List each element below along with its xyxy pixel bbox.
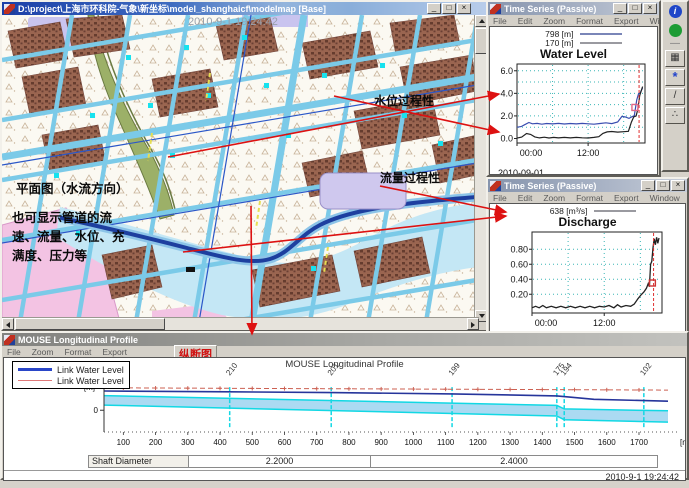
minimize-button[interactable]: _ [427, 3, 441, 14]
menu-window[interactable]: Window [650, 193, 680, 203]
legend-line-sample [594, 210, 636, 212]
svg-text:1600: 1600 [598, 438, 616, 447]
map-note-line: 也可显示管道的流 [12, 209, 125, 228]
profile-titlebar: MOUSE Longitudinal Profile [2, 333, 687, 346]
menu-bar: 纵断图 FileZoomFormatExport [2, 346, 687, 357]
map-horizontal-scrollbar[interactable] [2, 317, 479, 330]
map-canvas[interactable]: 2010-9-1 19:24:42 平面图（水流方向） 也可显示管道的流速、流量… [2, 15, 477, 322]
splash-tool-icon[interactable]: * [665, 69, 685, 86]
menu-format[interactable]: Format [576, 16, 603, 26]
svg-text:0.20: 0.20 [510, 289, 528, 299]
menu-export[interactable]: Export [102, 347, 127, 357]
app-icon [4, 4, 15, 14]
chart-date: 2010-09-01 [490, 168, 657, 175]
svg-text:300: 300 [181, 438, 195, 447]
legend-line-sample [580, 33, 622, 35]
svg-text:12:00: 12:00 [593, 318, 616, 328]
profile-legend: Link Water LevelLink Water Level [12, 361, 130, 389]
map-note-line: 速、流量、水位、充 [12, 228, 125, 247]
window-title: Time Series (Passive) [504, 4, 610, 14]
legend-entry: 798 [m] [490, 29, 657, 38]
map-label-discharge-process: 流量过程性 [380, 169, 440, 186]
svg-text:[m]: [m] [680, 438, 686, 447]
menu-bar: FileEditZoomFormatExportWindow [488, 192, 687, 203]
svg-text:200: 200 [149, 438, 163, 447]
svg-text:201: 201 [326, 361, 342, 377]
map-note-line: 满度、压力等 [12, 247, 125, 266]
map-note: 也可显示管道的流速、流量、水位、充满度、压力等 [12, 209, 125, 266]
svg-text:500: 500 [246, 438, 260, 447]
menu-zoom[interactable]: Zoom [32, 347, 54, 357]
minimize-button[interactable]: _ [641, 180, 655, 191]
svg-text:1200: 1200 [469, 438, 487, 447]
map-titlebar: D:\project\上海市环科院-气象\新坐标\model_shanghaic… [2, 2, 487, 15]
menu-edit[interactable]: Edit [518, 193, 533, 203]
chart-legend: 638 [m³/s] [490, 204, 685, 215]
close-button[interactable]: × [643, 3, 657, 14]
close-button[interactable]: × [457, 3, 471, 14]
svg-text:100: 100 [117, 438, 131, 447]
map-label-plan-view: 平面图（水流方向） [16, 178, 129, 197]
right-toolbar: i—▦*/∴ [661, 0, 689, 172]
scroll-right-button[interactable] [467, 318, 479, 330]
discharge-window: Time Series (Passive) _ □ × FileEditZoom… [486, 177, 689, 335]
menu-zoom[interactable]: Zoom [543, 193, 565, 203]
chart-title: Discharge [490, 215, 685, 229]
svg-text:700: 700 [310, 438, 324, 447]
menu-file[interactable]: File [7, 347, 21, 357]
water-level-titlebar: Time Series (Passive) _ □ × [488, 2, 659, 15]
window-icon [490, 4, 501, 14]
window-title: Time Series (Passive) [504, 181, 638, 191]
svg-text:800: 800 [342, 438, 356, 447]
map-label-water-level-process: 水位过程性 [374, 92, 434, 109]
water-level-window: Time Series (Passive) _ □ × FileEditZoom… [486, 0, 661, 177]
chart-legend: 798 [m]170 [m] [490, 27, 657, 47]
legend-entry: 638 [m³/s] [490, 206, 685, 215]
svg-text:199: 199 [447, 361, 463, 377]
svg-text:210: 210 [224, 361, 240, 377]
maximize-button[interactable]: □ [628, 3, 642, 14]
legend-line-sample [18, 380, 52, 381]
svg-text:1100: 1100 [437, 438, 455, 447]
scroll-left-button[interactable] [2, 318, 14, 330]
shaft-diameter-row: Shaft Diameter 2.2000 2.4000 [88, 455, 658, 468]
edit-profile-icon[interactable]: / [665, 88, 685, 105]
svg-text:0.60: 0.60 [510, 259, 528, 269]
svg-text:0: 0 [94, 406, 99, 415]
map-window: D:\project\上海市环科院-气象\新坐标\model_shanghaic… [0, 0, 489, 332]
maximize-button[interactable]: □ [442, 3, 456, 14]
svg-text:0.80: 0.80 [510, 244, 528, 254]
profile-window: MOUSE Longitudinal Profile 纵断图 FileZoomF… [0, 331, 689, 480]
menu-bar: FileEditZoomFormatExportWindow [488, 15, 659, 26]
svg-text:1500: 1500 [566, 438, 584, 447]
svg-text:900: 900 [374, 438, 388, 447]
window-icon [4, 335, 15, 345]
close-button[interactable]: × [671, 180, 685, 191]
svg-text:600: 600 [278, 438, 292, 447]
map-window-title: D:\project\上海市环科院-气象\新坐标\model_shanghaic… [18, 2, 424, 15]
svg-text:2.0: 2.0 [500, 111, 513, 121]
info-icon[interactable]: i [665, 4, 685, 21]
menu-edit[interactable]: Edit [518, 16, 533, 26]
menu-format[interactable]: Format [64, 347, 91, 357]
maximize-button[interactable]: □ [656, 180, 670, 191]
discharge-titlebar: Time Series (Passive) _ □ × [488, 179, 687, 192]
menu-export[interactable]: Export [614, 193, 639, 203]
svg-text:0.0: 0.0 [500, 133, 513, 143]
shaft-diameter-value: 2.4000 [371, 455, 658, 468]
svg-text:1000: 1000 [404, 438, 422, 447]
menu-file[interactable]: File [493, 16, 507, 26]
svg-text:00:00: 00:00 [520, 148, 543, 158]
legend-line-sample [18, 368, 52, 371]
legend-entry: 170 [m] [490, 38, 657, 47]
menu-file[interactable]: File [493, 193, 507, 203]
discharge-chart: 0.200.400.600.8000:0012:00 [490, 229, 684, 333]
legend-line-sample [580, 42, 622, 44]
legend-entry: Link Water Level [18, 364, 124, 375]
hscroll-thumb[interactable] [15, 318, 165, 330]
shaft-diameter-label: Shaft Diameter [88, 455, 189, 468]
status-timestamp: 2010-9-1 19:24:42 [4, 470, 685, 481]
minimize-button[interactable]: _ [613, 3, 627, 14]
water-level-chart: 0.02.04.06.000:0012:00 [490, 61, 656, 165]
window-title: MOUSE Longitudinal Profile [18, 335, 685, 345]
menu-zoom[interactable]: Zoom [543, 16, 565, 26]
legend-entry: Link Water Level [18, 375, 124, 386]
svg-text:0.40: 0.40 [510, 274, 528, 284]
shaft-diameter-value: 2.2000 [189, 455, 371, 468]
map-timestamp: 2010-9-1 19:24:42 [188, 16, 278, 28]
select-grid-icon[interactable]: ▦ [665, 50, 685, 67]
separator: — [665, 42, 685, 48]
steps-tool-icon[interactable]: ∴ [665, 107, 685, 124]
svg-text:1400: 1400 [533, 438, 551, 447]
svg-text:00:00: 00:00 [535, 318, 558, 328]
svg-text:1300: 1300 [501, 438, 519, 447]
svg-text:4.0: 4.0 [500, 88, 513, 98]
svg-text:102: 102 [638, 361, 654, 377]
svg-text:6.0: 6.0 [500, 66, 513, 76]
chart-title: Water Level [490, 47, 657, 61]
svg-text:1700: 1700 [630, 438, 648, 447]
svg-text:400: 400 [213, 438, 227, 447]
svg-text:12:00: 12:00 [577, 148, 600, 158]
menu-format[interactable]: Format [576, 193, 603, 203]
window-icon [490, 181, 501, 191]
menu-export[interactable]: Export [614, 16, 639, 26]
